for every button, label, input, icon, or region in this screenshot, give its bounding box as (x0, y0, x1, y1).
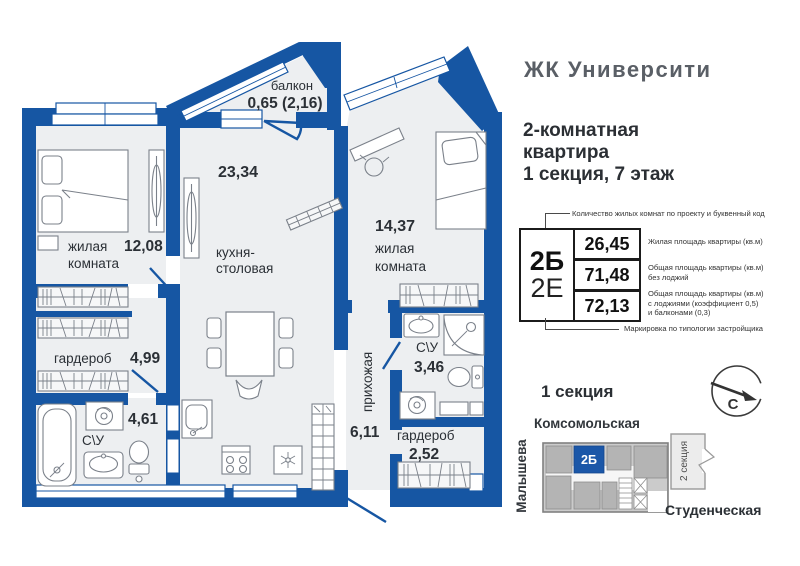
connector-line (545, 329, 619, 330)
street-bottom-label: Студенческая (665, 502, 761, 518)
subtitle-line-1: 2-комнатная (523, 120, 674, 142)
label-line: без лоджий (648, 273, 798, 283)
label-line: с лоджиями (коэффициент 0,5) (648, 299, 798, 309)
sink-left-icon (84, 452, 123, 478)
unit-code-primary: 2Б (530, 248, 564, 275)
wardrobe-right-label: гардероб (397, 428, 455, 443)
subtitle-line-2: квартира (523, 142, 674, 164)
label-line: Общая площадь квартиры (кв.м) (648, 263, 798, 273)
table-top-note: Количество жилых комнат по проекту и бук… (572, 209, 765, 219)
connector-line (545, 213, 570, 214)
stairs-icon (619, 478, 632, 509)
kitchen-label-2: столовая (216, 261, 273, 276)
cabinet-left-icon (149, 150, 164, 232)
area-value-total-loggia: 72,13 (573, 290, 641, 322)
bedroom-left-label-2: комната (68, 256, 120, 271)
wardrobe-right-icon (398, 462, 470, 488)
label-line: и балконами (0,3) (648, 308, 798, 318)
brand-title: ЖК Университи (524, 57, 712, 83)
sink-right-icon (404, 314, 439, 337)
unit-code-secondary: 2Е (530, 275, 563, 302)
adjacent-section: 2 секция (671, 434, 714, 489)
wardrobe-left-area: 4,99 (130, 350, 161, 367)
hallway-label: прихожая (360, 352, 375, 412)
bed-right-icon (436, 132, 486, 229)
bathroom-left-area: 4,61 (128, 411, 159, 428)
label-line: Жилая площадь квартиры (кв.м) (648, 237, 798, 247)
shower-icon (444, 315, 484, 355)
washer-right-icon (400, 392, 435, 419)
bedroom-right-area: 14,37 (375, 218, 415, 235)
adjacent-section-label: 2 секция (679, 441, 690, 481)
area-label-living: Жилая площадь квартиры (кв.м) (648, 237, 798, 247)
bedroom-right-label-1: жилая (375, 241, 414, 256)
connector-line (545, 318, 546, 329)
area-label-total-loggia: Общая площадь квартиры (кв.м) с лоджиями… (648, 289, 798, 318)
balcony-area: 0,65 (2,16) (248, 95, 323, 112)
street-left-label: Малышева (514, 439, 529, 513)
bathroom-left-label: С\У (82, 433, 105, 448)
bedroom-left-area: 12,08 (124, 238, 163, 255)
toilet-right-icon (448, 366, 483, 388)
bath-cabinet-icon (470, 402, 483, 415)
hall-wardrobe-icon (312, 404, 334, 490)
compass-north-label: С (728, 396, 739, 413)
bath-cabinet-icon (440, 402, 468, 415)
kitchen-area: 23,34 (218, 164, 258, 181)
connector-line (545, 213, 546, 228)
page: балкон 0,65 (2,16) 23,34 кухня- столовая… (0, 0, 800, 566)
kitchen-label-1: кухня- (216, 245, 255, 260)
wardrobe-shelf-icon (38, 287, 128, 307)
wardrobe-right-area: 2,52 (409, 446, 439, 463)
bedroom-right-label-2: комната (375, 259, 427, 274)
area-value-living: 26,45 (573, 228, 641, 260)
cabinet-kitchen-icon (184, 178, 199, 258)
building-footprint: 2Б (543, 443, 668, 512)
subtitle-line-3: 1 секция, 7 этаж (523, 164, 674, 186)
wardrobe-left-label: гардероб (54, 351, 112, 366)
compass: С (711, 366, 762, 416)
highlighted-unit-label: 2Б (581, 453, 597, 467)
area-value-total: 71,48 (573, 259, 641, 291)
floor-plan: балкон 0,65 (2,16) 23,34 кухня- столовая… (0, 0, 520, 566)
hob-icon (274, 446, 302, 474)
street-top-label: Комсомольская (534, 416, 640, 431)
hallway-area: 6,11 (350, 424, 380, 441)
bathroom-right-area: 3,46 (414, 359, 445, 376)
kitchen-sink-icon (182, 400, 212, 438)
area-label-total: Общая площадь квартиры (кв.м) без лоджий (648, 263, 798, 282)
balcony-label: балкон (271, 78, 313, 93)
washing-machine-icon (86, 402, 123, 430)
bathtub-icon (38, 404, 76, 486)
compass-arrow-icon (742, 390, 757, 401)
bathroom-right-label: С\У (416, 340, 439, 355)
apartment-subtitle: 2-комнатная квартира 1 секция, 7 этаж (523, 120, 674, 186)
bedroom-left-label-1: жилая (68, 239, 107, 254)
wardrobe-rightroom-icon (400, 284, 478, 307)
stove-icon (222, 446, 250, 474)
unit-code-cell: 2Б 2Е (519, 228, 575, 322)
table-bottom-note: Маркировка по типологии застройщика (624, 324, 763, 334)
section-map: С 1 секция Комсомольская Малышева 2Б (505, 355, 800, 566)
label-line: Общая площадь квартиры (кв.м) (648, 289, 798, 299)
section-title: 1 секция (541, 382, 613, 401)
